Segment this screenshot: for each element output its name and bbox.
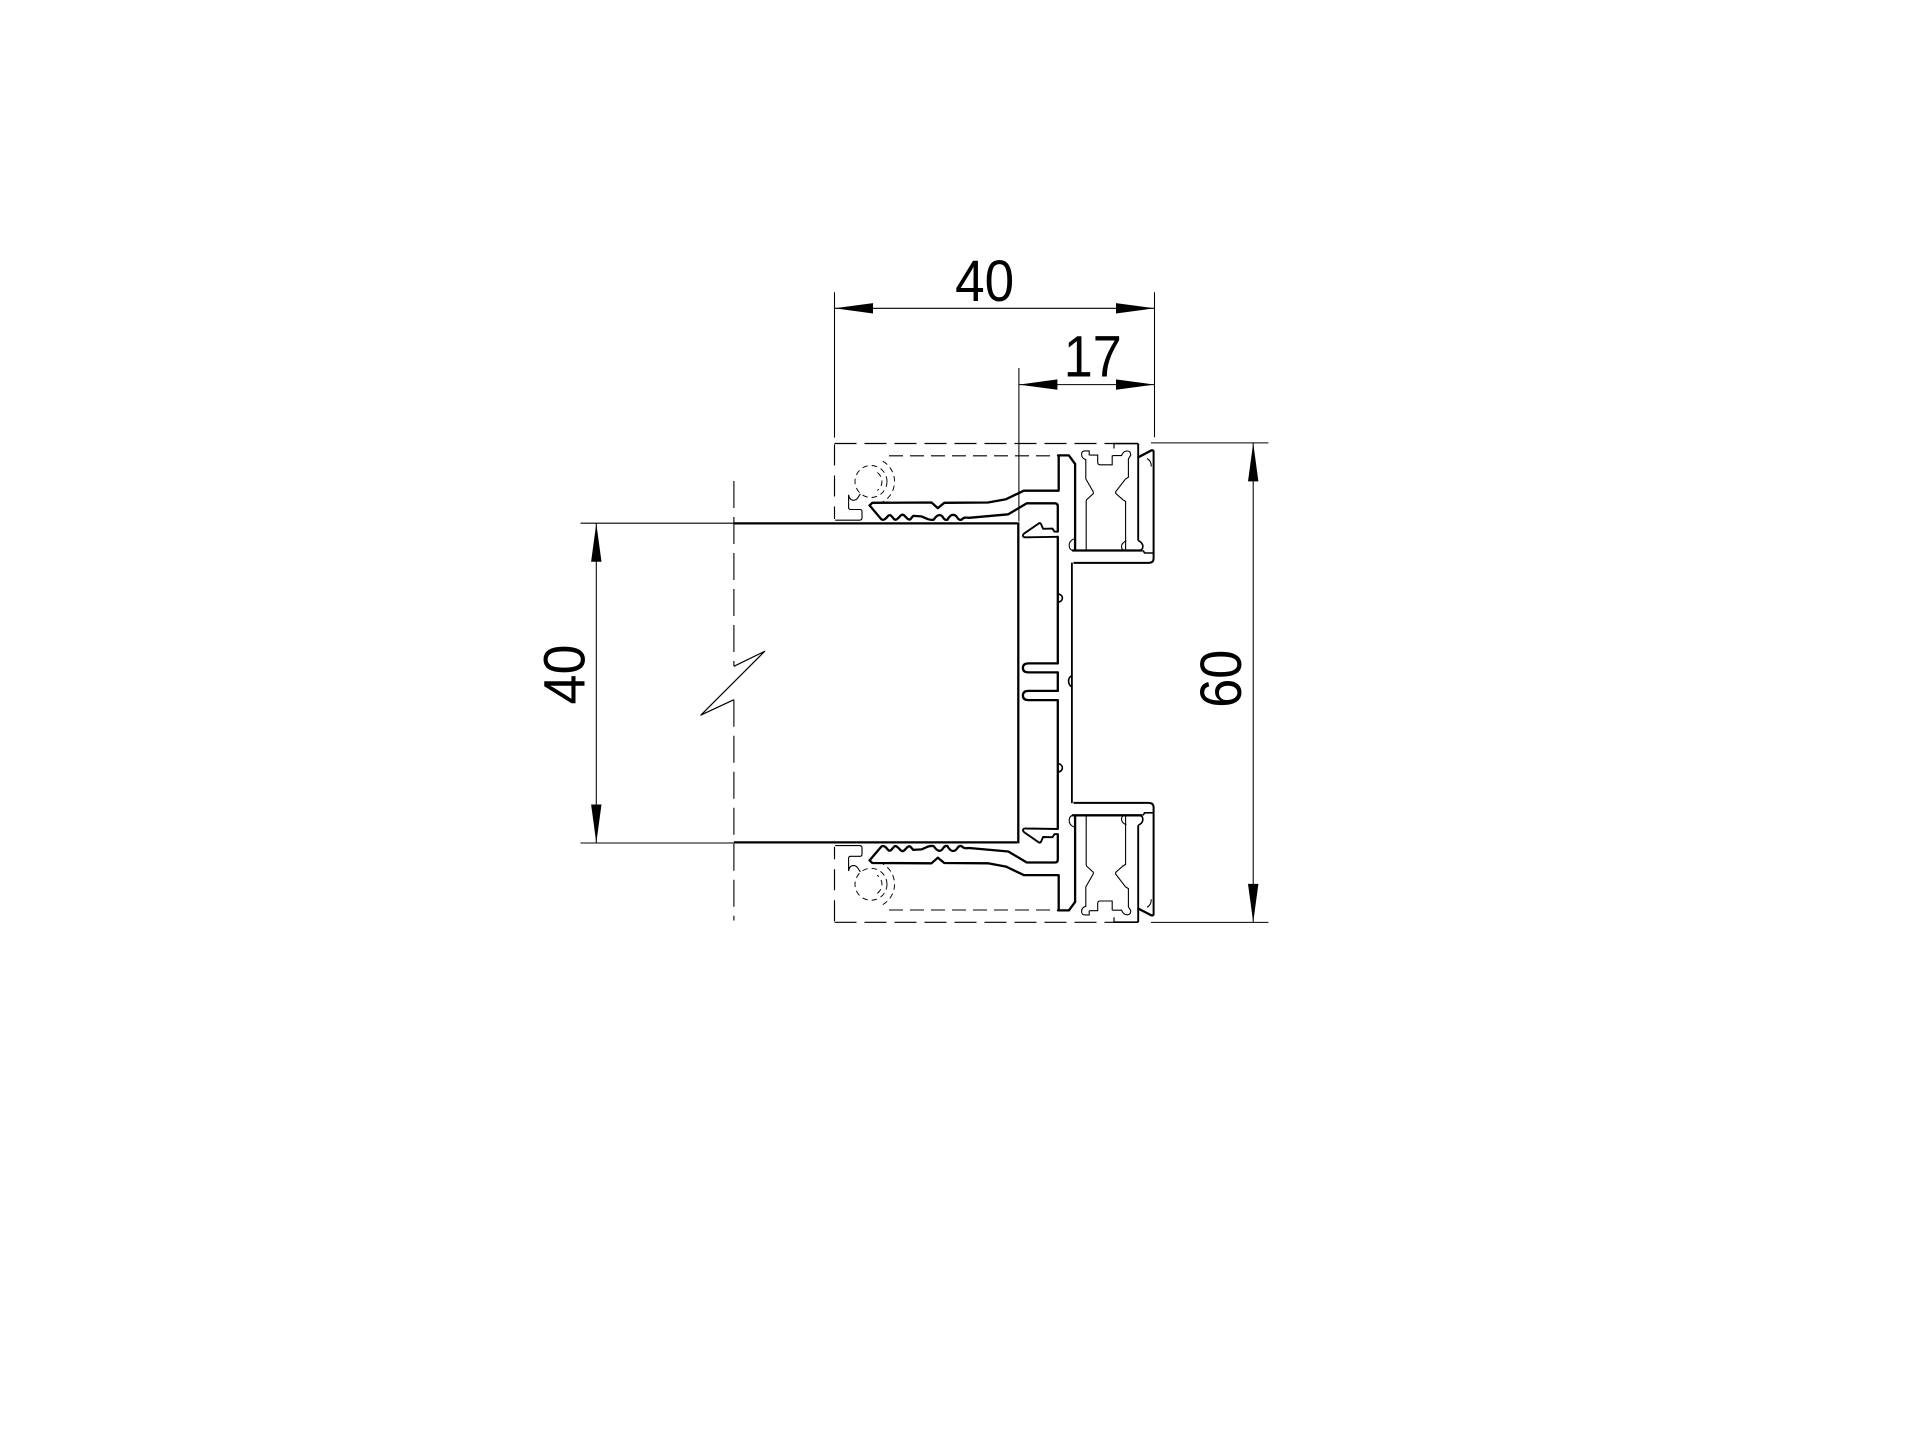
- svg-text:40: 40: [532, 645, 597, 705]
- svg-text:60: 60: [1189, 650, 1254, 708]
- svg-text:17: 17: [1064, 325, 1122, 390]
- svg-text:40: 40: [955, 249, 1014, 314]
